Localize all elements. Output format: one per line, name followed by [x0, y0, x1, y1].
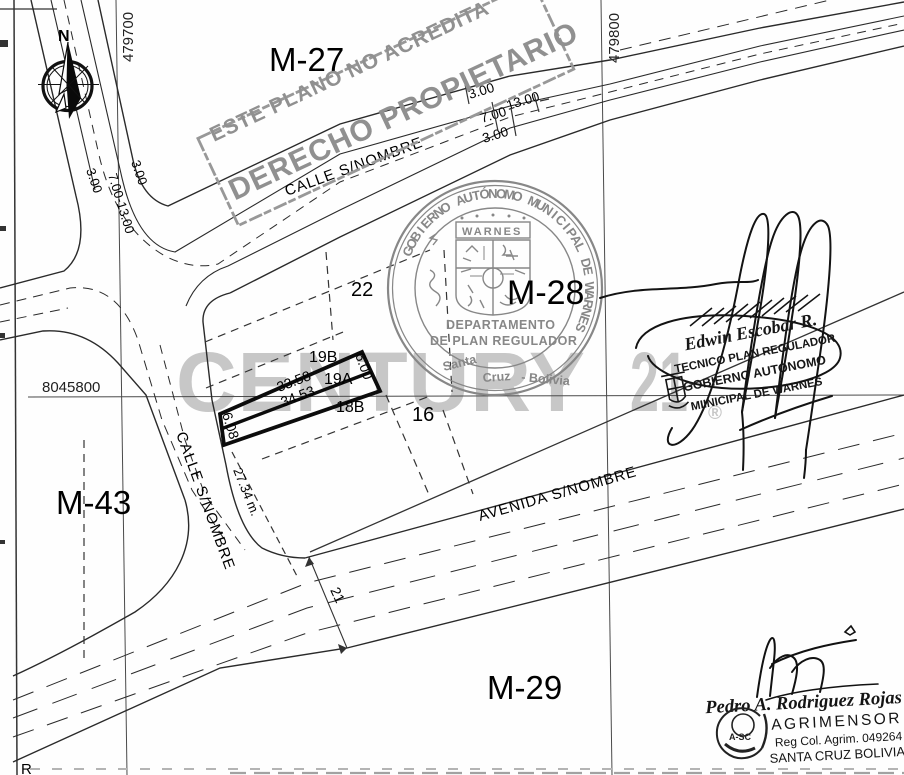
- svg-text:21: 21: [630, 335, 688, 429]
- svg-text:479800: 479800: [606, 13, 623, 63]
- svg-text:DEPARTAMENTO: DEPARTAMENTO: [446, 318, 555, 332]
- svg-text:M-43: M-43: [56, 484, 131, 521]
- svg-text:A-SC: A-SC: [729, 732, 751, 742]
- svg-text:479700: 479700: [120, 12, 137, 62]
- svg-text:Cruz: Cruz: [482, 369, 511, 385]
- svg-text:WARNES: WARNES: [462, 226, 522, 238]
- svg-text:N: N: [58, 28, 70, 45]
- svg-text:M-29: M-29: [487, 669, 562, 706]
- svg-text:22: 22: [351, 279, 373, 301]
- svg-text:16: 16: [412, 404, 434, 426]
- svg-text:18B: 18B: [336, 399, 364, 416]
- svg-text:DE PLAN REGULADOR: DE PLAN REGULADOR: [430, 334, 577, 348]
- svg-text:19A: 19A: [324, 371, 353, 388]
- svg-text:19B: 19B: [309, 349, 337, 366]
- svg-text:M-28: M-28: [507, 274, 584, 312]
- svg-text:8045800: 8045800: [42, 379, 100, 396]
